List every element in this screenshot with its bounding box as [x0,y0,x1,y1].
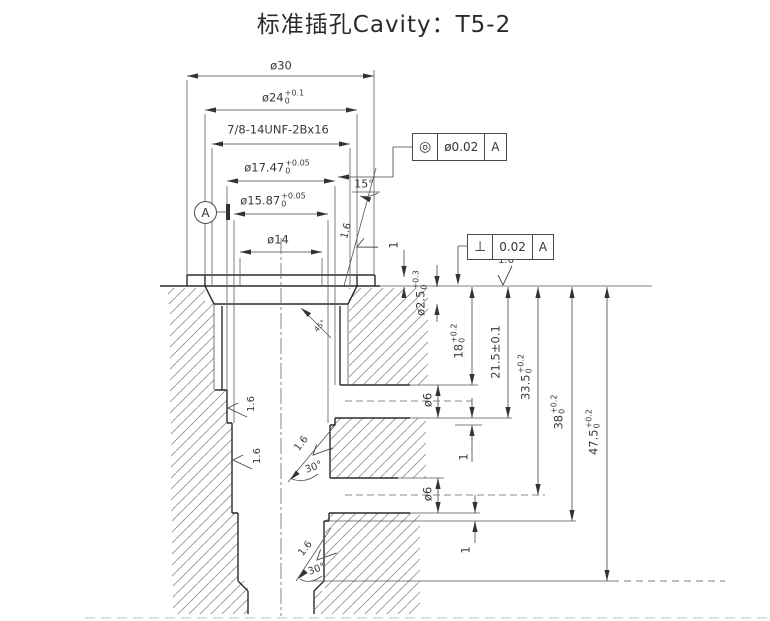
dim-depth-47-5-tolerance: +0.20 [586,409,603,428]
datum-a-balloon: A [194,201,217,224]
dim-dia30: ø30 [270,60,292,72]
dim-depth-33-5-tolerance: +0.20 [518,354,535,373]
finish-wall2-text: 1.6 [253,448,263,464]
dim-step1: 1 [458,453,470,460]
finish-wall1: 1.6 [247,396,257,412]
tol-lower: 0 [459,323,467,342]
dim-dia24: ø24+0.10 [262,90,304,107]
fcf-concentricity-datum: A [484,134,505,160]
concentricity-icon: ◎ [413,134,437,160]
tol-lower: 0 [594,409,602,428]
dim-depth-33-5-text: 33.5 [520,374,532,400]
dim-depth-38: 38+0.20 [551,394,568,429]
dim-depth-38-tolerance: +0.20 [551,394,568,413]
tol-lower: 0 [285,98,304,106]
fcf-perpendicularity: ⊥ 0.02 A [467,234,554,260]
dim-step2: 1 [460,546,472,553]
dim-depth-47-5-text: 47.5 [588,429,600,455]
datum-attachment-bar [226,204,230,220]
engineering-drawing-page: 标准插孔Cavity：T5-2 ø30 ø24+0.10 7/8-14UNF-2… [0,0,770,621]
dim-dia17-47-text: ø17.47 [244,162,284,174]
dim-port2-dia6: ø6 [422,487,434,501]
dim-dia15-87-tolerance: +0.050 [281,193,306,210]
fcf-perpendicularity-tolerance: 0.02 [492,235,532,259]
tol-lower: 0 [281,201,306,209]
dim-dia15-87-text: ø15.87 [240,195,280,207]
angle-taper-15-text: 15° [354,179,374,190]
dim-dia17-47-tolerance: +0.050 [285,160,310,177]
dim-dia24-tolerance: +0.10 [285,90,304,107]
dim-depth-38-text: 38 [553,415,565,430]
finish-wall1-text: 1.6 [247,396,257,412]
dim-step1-text: 1 [458,453,470,460]
dim-lip-height-text: 1 [388,241,400,248]
dim-depth-47-5: 47.5+0.20 [586,409,603,455]
drawing-linework [0,0,770,621]
fcf-perpendicularity-datum: A [532,235,553,259]
tol-lower: 0 [526,354,534,373]
drawing-title: 标准插孔Cavity：T5-2 [257,5,511,39]
dim-dia2-5-text: ø2.5 [415,291,427,316]
dim-dia14: ø14 [267,234,289,246]
dim-dia30-text: ø30 [270,60,292,72]
dim-depth-18: 18+0.20 [451,323,468,358]
tol-lower: 0 [285,168,310,176]
dim-port2-dia6-text: ø6 [422,487,434,501]
dim-port1-dia6: ø6 [422,393,434,407]
dim-lip-height: 1 [388,241,400,248]
datum-a-label: A [201,206,209,220]
reference-lines [214,168,725,581]
dim-dia2-5: ø2.5+0.30 [413,270,430,316]
tol-lower: 0 [421,270,429,289]
dim-depth-33-5: 33.5+0.20 [518,354,535,400]
dim-depth-21-5: 21.5±0.1 [490,325,502,379]
dim-thread-text: 7/8-14UNF-2Bx16 [227,124,329,136]
dim-dia24-text: ø24 [262,92,284,104]
dim-depth-21-5-text: 21.5±0.1 [490,325,502,379]
dim-dia14-text: ø14 [267,234,289,246]
dim-depth-18-text: 18 [453,344,465,359]
finish-wall2: 1.6 [253,448,263,464]
angle-taper-15: 15° [354,179,374,190]
dim-step2-text: 1 [460,546,472,553]
dim-dia15-87: ø15.87+0.050 [240,193,305,210]
dim-port1-dia6-text: ø6 [422,393,434,407]
dim-dia17-47: ø17.47+0.050 [244,160,309,177]
dim-dia2-5-tolerance: +0.30 [413,270,430,289]
dim-depth-18-tolerance: +0.20 [451,323,468,342]
dim-thread: 7/8-14UNF-2Bx16 [227,124,329,136]
fcf-concentricity: ◎ ø0.02 A [412,133,507,161]
tol-lower: 0 [559,394,567,413]
fcf-concentricity-tolerance: ø0.02 [437,134,484,160]
perpendicularity-icon: ⊥ [468,235,492,259]
